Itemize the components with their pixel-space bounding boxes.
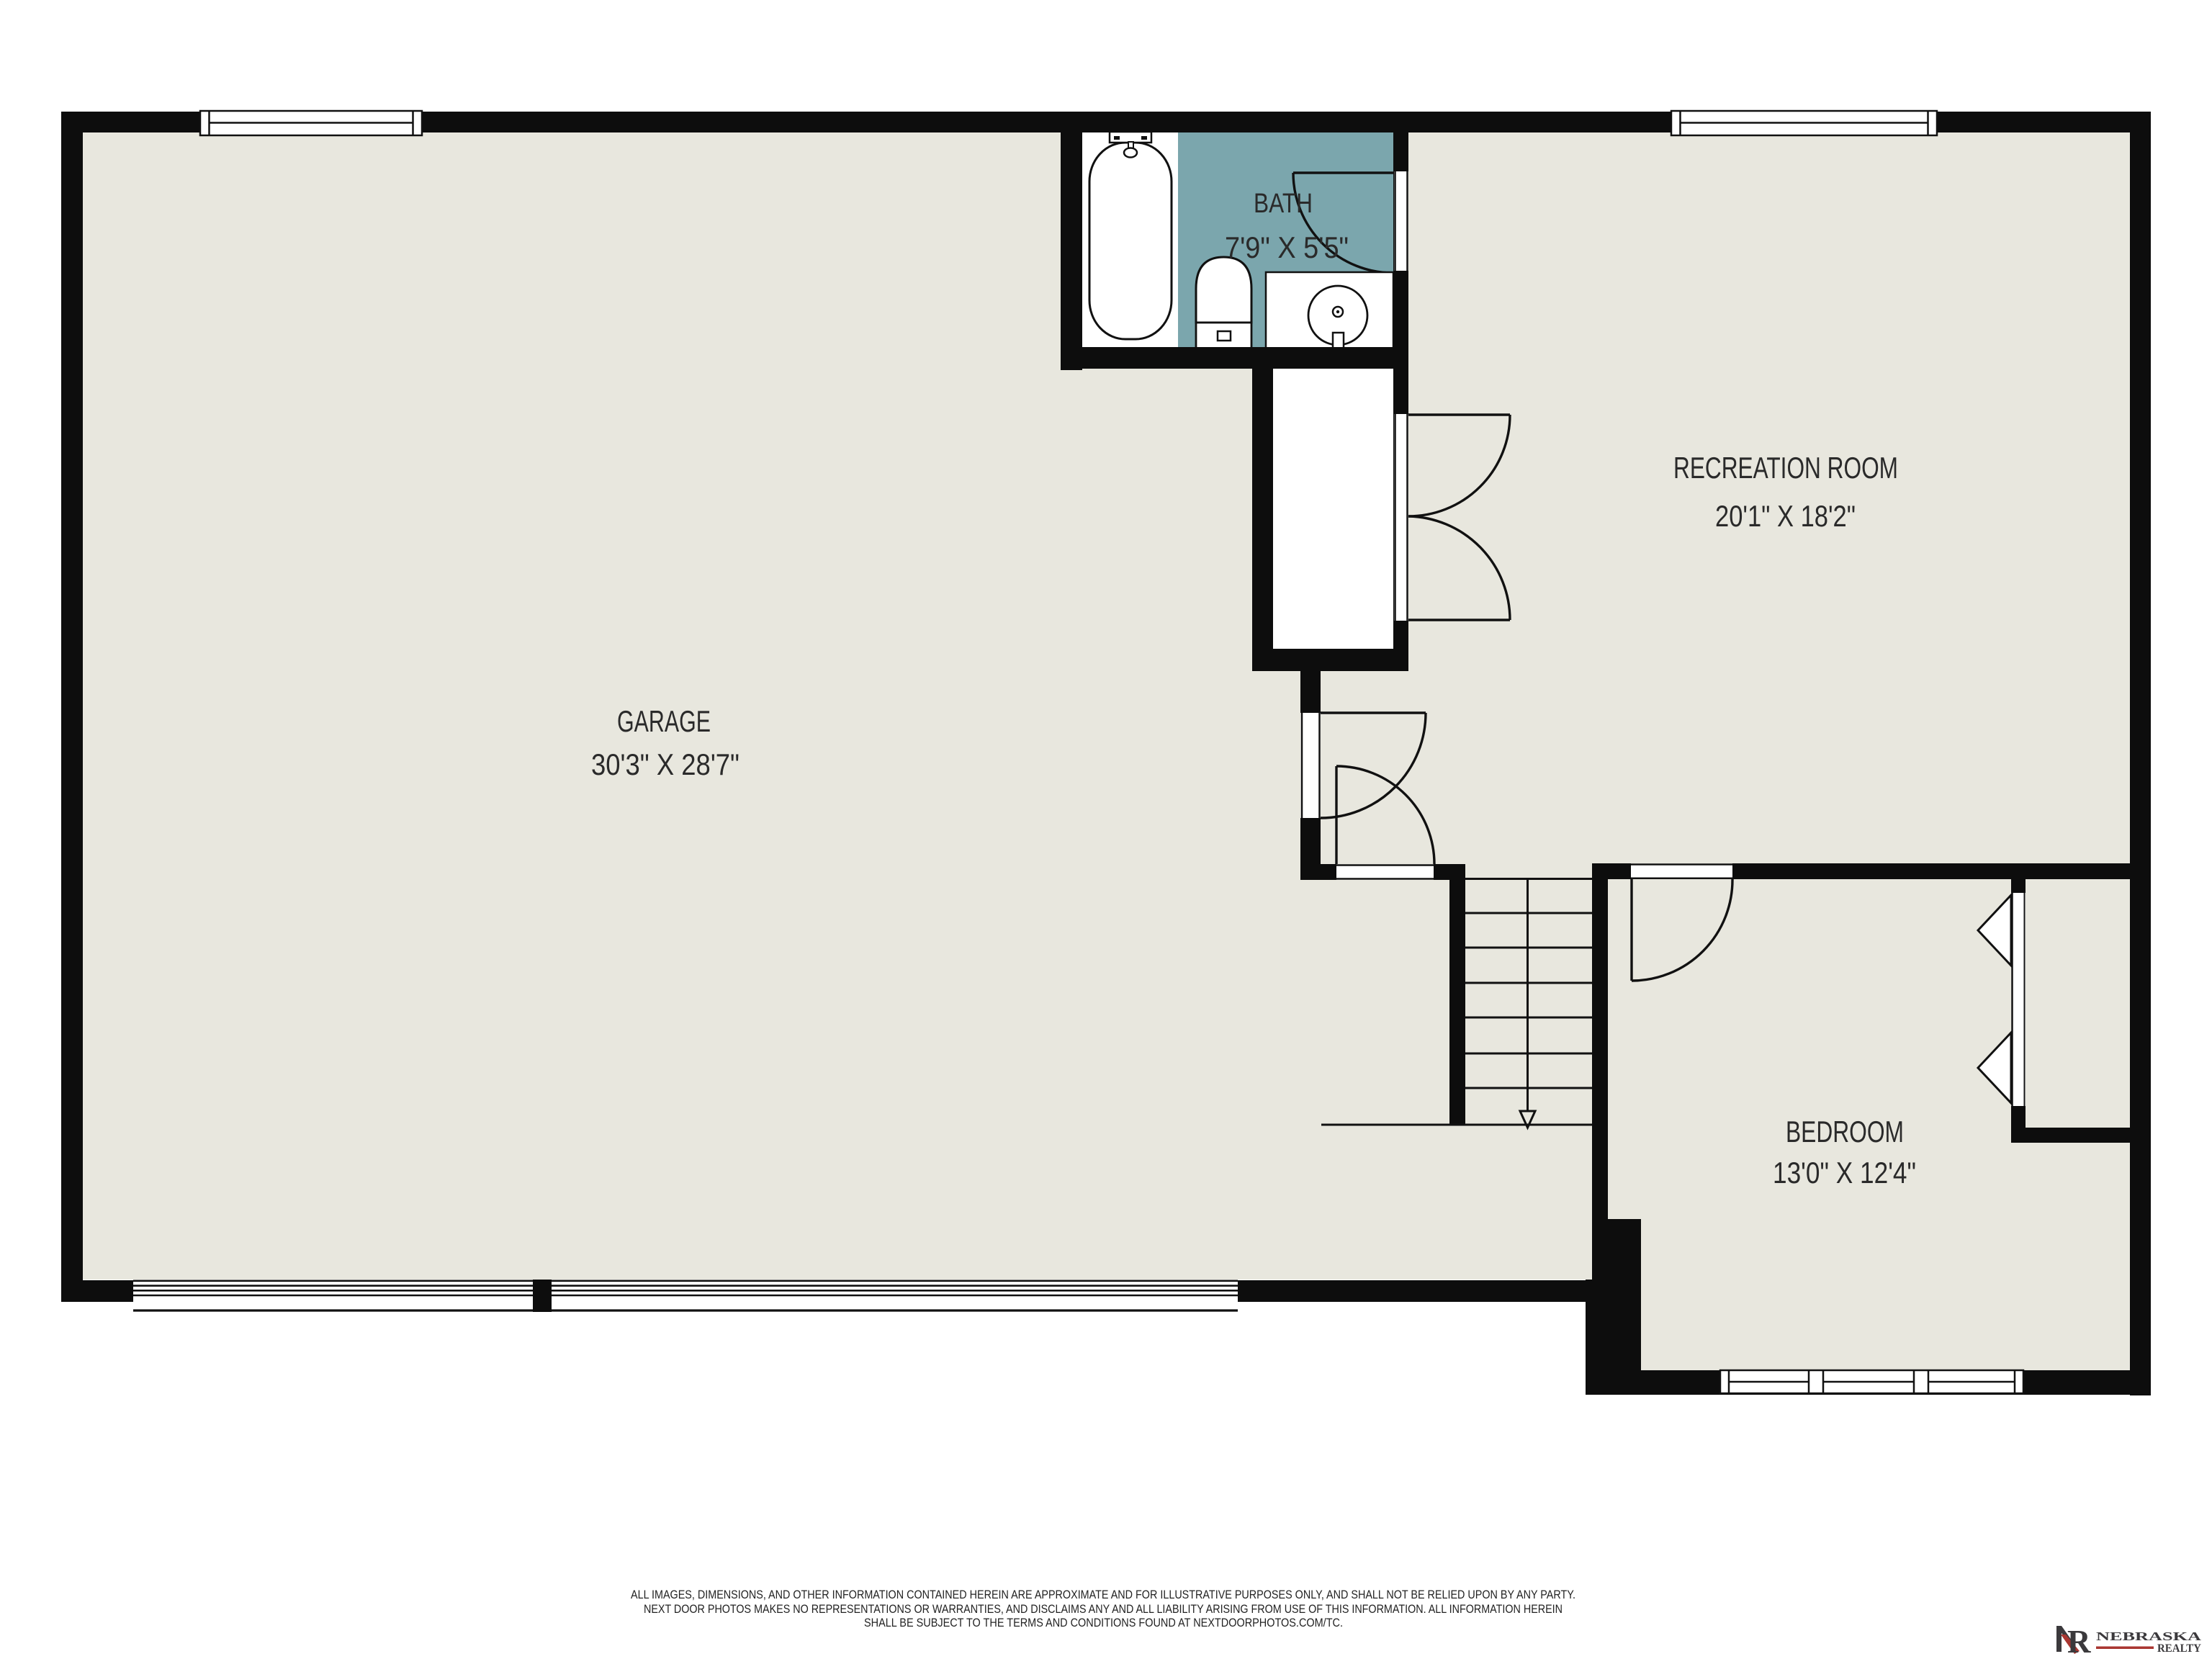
- svg-text:20'1" X 18'2": 20'1" X 18'2": [1715, 499, 1856, 533]
- svg-text:NEXT DOOR PHOTOS MAKES NO REPR: NEXT DOOR PHOTOS MAKES NO REPRESENTATION…: [644, 1602, 1563, 1616]
- svg-text:R: R: [2067, 1624, 2091, 1659]
- svg-text:BEDROOM: BEDROOM: [1786, 1115, 1904, 1148]
- svg-text:13'0" X 12'4": 13'0" X 12'4": [1773, 1156, 1916, 1190]
- svg-text:GARAGE: GARAGE: [617, 704, 711, 738]
- svg-text:RECREATION ROOM: RECREATION ROOM: [1673, 451, 1898, 485]
- svg-text:ALL IMAGES, DIMENSIONS, AND OT: ALL IMAGES, DIMENSIONS, AND OTHER INFORM…: [631, 1588, 1575, 1601]
- svg-text:SHALL BE SUBJECT TO THE TERMS: SHALL BE SUBJECT TO THE TERMS AND CONDIT…: [864, 1616, 1343, 1629]
- svg-text:30'3" X 28'7": 30'3" X 28'7": [591, 747, 739, 781]
- svg-text:NEBRASKA: NEBRASKA: [2096, 1629, 2202, 1643]
- svg-text:REALTY: REALTY: [2157, 1642, 2201, 1655]
- svg-text:BATH: BATH: [1254, 189, 1313, 219]
- svg-text:7'9" X 5'5": 7'9" X 5'5": [1225, 230, 1349, 264]
